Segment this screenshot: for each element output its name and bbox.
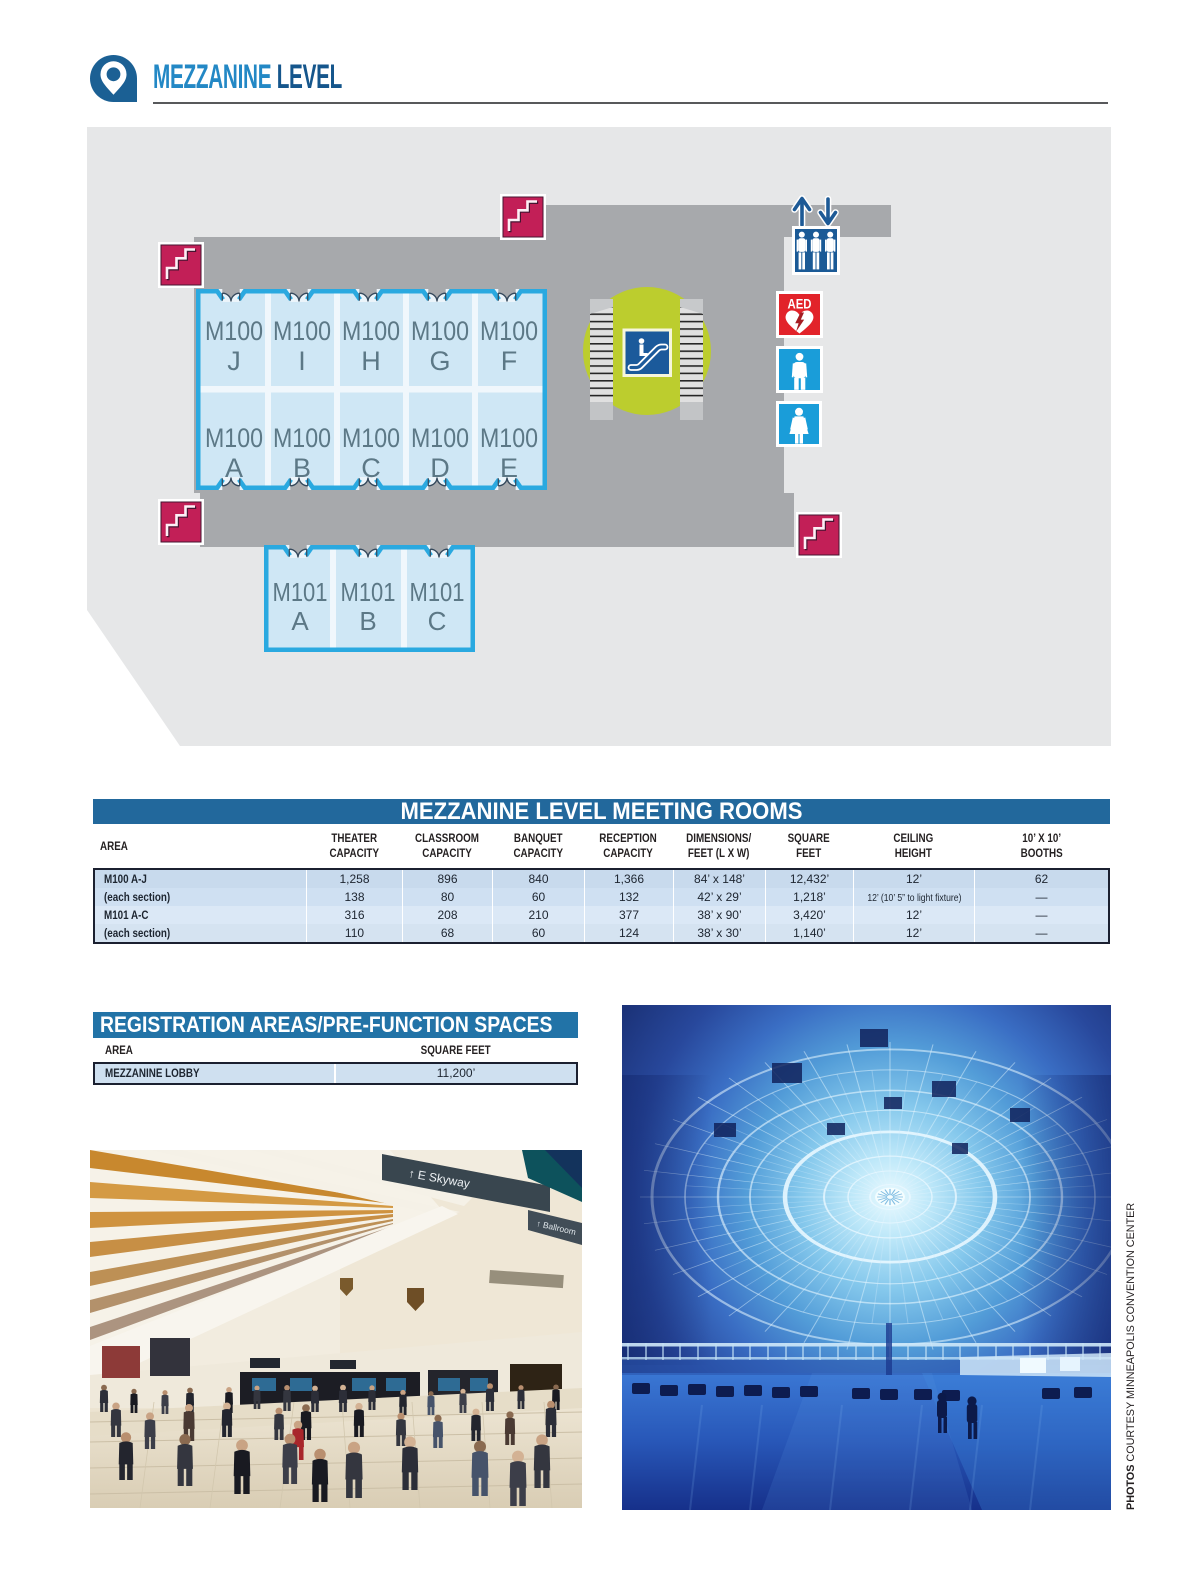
svg-text:M100: M100 <box>205 423 263 453</box>
svg-text:C: C <box>428 606 447 636</box>
svg-text:M100: M100 <box>480 316 538 346</box>
svg-text:I: I <box>298 346 306 376</box>
svg-text:J: J <box>227 346 241 376</box>
svg-text:A: A <box>291 606 309 636</box>
svg-text:M101: M101 <box>273 577 328 607</box>
svg-text:B: B <box>359 606 376 636</box>
svg-text:D: D <box>430 453 450 483</box>
svg-text:M100: M100 <box>205 316 263 346</box>
svg-text:B: B <box>293 453 311 483</box>
svg-text:M100: M100 <box>273 316 331 346</box>
svg-text:M100: M100 <box>480 423 538 453</box>
svg-text:M100: M100 <box>342 316 400 346</box>
svg-text:M101: M101 <box>341 577 396 607</box>
svg-text:F: F <box>501 346 518 376</box>
svg-text:A: A <box>225 453 243 483</box>
svg-text:E: E <box>500 453 518 483</box>
svg-text:H: H <box>361 346 381 376</box>
svg-text:G: G <box>429 346 450 376</box>
svg-text:M100: M100 <box>411 423 469 453</box>
svg-text:M101: M101 <box>410 577 465 607</box>
svg-text:AED: AED <box>788 296 812 312</box>
svg-text:M100: M100 <box>273 423 331 453</box>
svg-text:M100: M100 <box>411 316 469 346</box>
svg-text:C: C <box>361 453 381 483</box>
svg-text:M100: M100 <box>342 423 400 453</box>
